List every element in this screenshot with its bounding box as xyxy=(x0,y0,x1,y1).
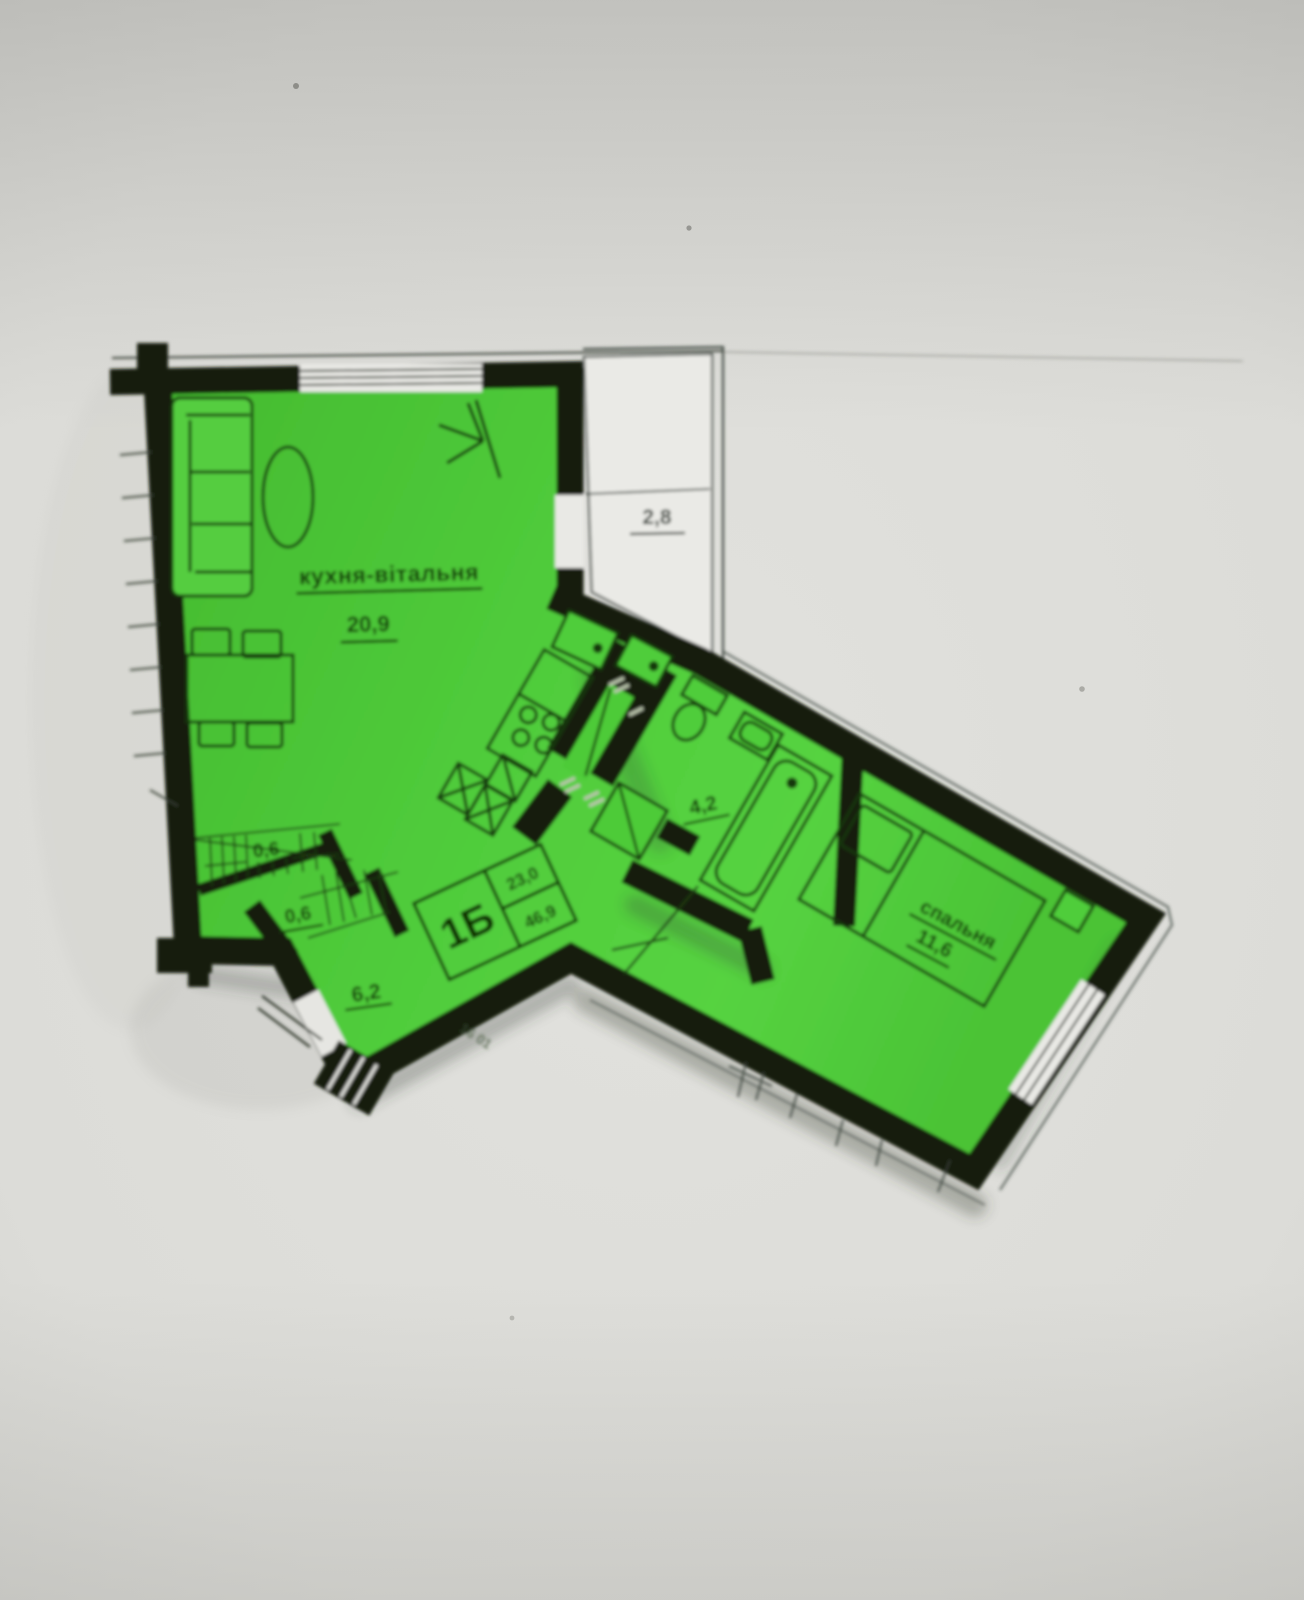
svg-text:0,6: 0,6 xyxy=(252,839,280,863)
svg-text:6,2: 6,2 xyxy=(350,980,382,1007)
svg-text:20,9: 20,9 xyxy=(347,611,390,637)
svg-text:кухня-вітальня: кухня-вітальня xyxy=(299,559,480,590)
svg-text:2,8: 2,8 xyxy=(642,506,672,529)
